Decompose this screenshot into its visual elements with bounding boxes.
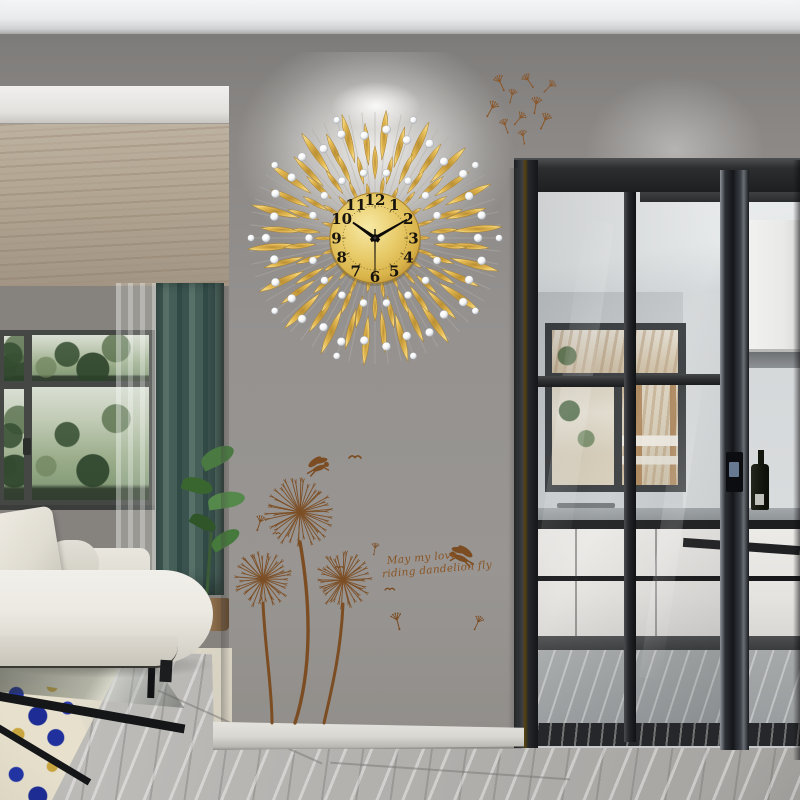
door-handle <box>726 452 743 492</box>
right-edge-shadow <box>793 160 800 760</box>
window-pane <box>4 389 24 500</box>
dandelion-seed <box>498 117 512 135</box>
dandelion-seed <box>536 111 553 132</box>
sliding-door-rail <box>636 374 722 385</box>
bird-silhouette <box>349 456 361 458</box>
clock-numeral: 5 <box>389 263 399 281</box>
dandelion-seed <box>520 72 537 91</box>
dandelion-head <box>317 551 372 610</box>
dandelion-seed <box>517 129 529 145</box>
clock-numeral: 12 <box>365 191 386 209</box>
dandelion-seed <box>470 614 485 632</box>
clock-numeral: 2 <box>403 210 413 228</box>
dandelion-seed <box>505 88 517 105</box>
bird-silhouette <box>385 588 395 590</box>
handle-sticker <box>729 462 739 477</box>
clock-numeral: 11 <box>345 196 366 214</box>
upper-cabinet <box>745 220 800 352</box>
under-cabinet-shadow <box>742 352 800 368</box>
sliding-door-mullion <box>624 192 636 742</box>
dandelion-seed <box>390 611 405 631</box>
dandelion-head <box>234 551 291 607</box>
window-handle <box>23 438 31 455</box>
dandelion-seed <box>510 110 527 128</box>
bird-silhouette <box>273 533 280 534</box>
window-pane <box>4 336 24 381</box>
plant-leaf <box>189 510 219 535</box>
clock-numeral: 7 <box>351 263 361 281</box>
dandelion-seed <box>482 99 500 120</box>
clock-numeral: 4 <box>403 249 413 267</box>
dandelion-stems <box>263 542 343 723</box>
dandelion-seed <box>252 514 267 533</box>
dandelion-wall-decal: May my love,riding dandelion fly <box>215 430 515 730</box>
clock-numeral: 9 <box>331 229 341 247</box>
wood-slat-ceiling <box>0 124 229 286</box>
sofa-leg <box>159 660 172 683</box>
floating-dandelion-seeds <box>476 58 568 153</box>
dandelion-seed <box>529 96 543 115</box>
clock-numeral: 3 <box>408 229 418 247</box>
ceiling <box>0 0 800 34</box>
plant-leaf <box>181 474 215 497</box>
dandelion-seed <box>541 78 558 95</box>
dandelion-seed <box>370 542 380 556</box>
clock-numeral: 8 <box>336 249 346 267</box>
wood-grain <box>0 124 229 286</box>
sliding-door-header <box>514 158 800 192</box>
dandelion-head <box>264 478 332 547</box>
white-beam <box>0 86 229 124</box>
fairy-silhouette <box>307 454 329 476</box>
dandelion-seed <box>492 73 509 93</box>
sofa-front-panel <box>0 636 178 668</box>
black-marble-threshold <box>537 723 800 746</box>
sliding-door-rail <box>538 376 624 387</box>
living-room-photo: May my love,riding dandelion fly 1234567… <box>0 0 800 800</box>
bottle-label <box>755 494 764 505</box>
clock-numeral: 1 <box>389 196 399 214</box>
sheer-curtain <box>116 283 160 591</box>
